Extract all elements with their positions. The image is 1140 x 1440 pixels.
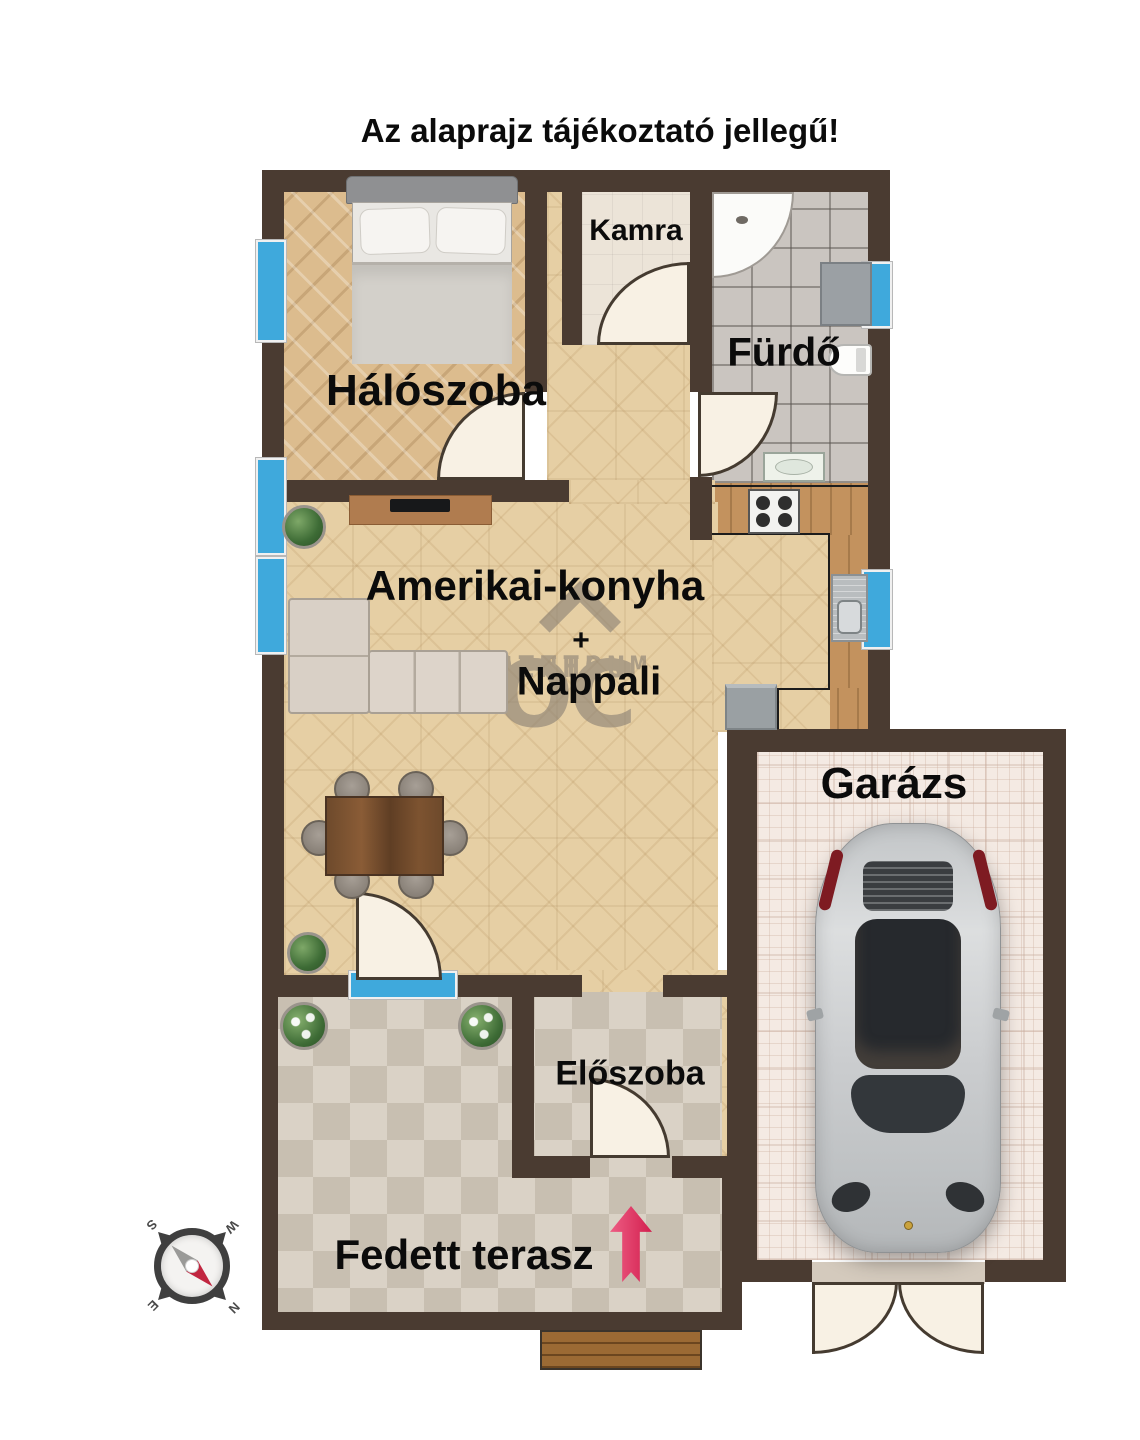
wooden-step [540, 1330, 702, 1370]
page-title: Az alaprajz tájékoztató jellegű! [361, 112, 840, 150]
wall-terrace-bottom [262, 1312, 722, 1330]
car-roof-glass [855, 919, 961, 1069]
engine-vent-icon [863, 861, 953, 911]
wall-garage-bottom-right [985, 1260, 1066, 1282]
living-kitchen-label: Amerikai-konyha [366, 562, 704, 610]
hall-label: Előszoba [555, 1055, 704, 1094]
bathroom-sink [763, 452, 825, 482]
toilet-tank [856, 348, 866, 372]
wall-garage-right [1043, 729, 1066, 1282]
car [815, 823, 1001, 1253]
potted-plant [287, 932, 329, 974]
kitchen-sink [831, 574, 868, 642]
compass-icon: N S E W [124, 1198, 260, 1334]
wall-hall-top-stub [663, 975, 737, 997]
potted-plant [280, 1002, 328, 1050]
bedroom-window [256, 240, 286, 342]
shower-drain-icon [736, 216, 748, 224]
burner-icon [756, 496, 770, 510]
sofa [368, 650, 508, 714]
gas-stove [748, 489, 800, 534]
garage-door-right-leaf [898, 1282, 984, 1354]
living-window-1 [256, 458, 286, 555]
living-label: Nappali [517, 660, 661, 705]
wall-living-bottom-left [262, 975, 352, 997]
pantry-label: Kamra [589, 214, 682, 248]
bathroom-label: Fürdő [727, 331, 840, 376]
pillow [435, 207, 507, 255]
floor-plan: Az alaprajz tájékoztató jellegű! [0, 0, 1140, 1440]
dining-table [325, 796, 444, 876]
burner-icon [778, 496, 792, 510]
refrigerator [725, 684, 777, 730]
sofa-corner [288, 598, 370, 714]
burner-icon [778, 513, 792, 527]
pillow [359, 207, 431, 255]
washing-machine [820, 262, 872, 326]
wall-hall-left [512, 975, 534, 1178]
compass-letter-north: N [226, 1299, 243, 1316]
garage-label: Garázs [821, 759, 968, 809]
wall-bathroom-left [690, 170, 712, 392]
potted-plant [282, 505, 326, 549]
terrace-label: Fedett terasz [334, 1231, 593, 1279]
wall-hall-bottom-left [512, 1156, 590, 1178]
car-windshield [851, 1075, 965, 1133]
basin-icon [775, 459, 813, 475]
wall-bathroom-left-stub [690, 477, 712, 540]
kitchen-partition-line [690, 485, 868, 487]
wall-terrace-right [722, 1178, 742, 1330]
bed-headboard [346, 176, 518, 204]
living-plus-label: + [572, 624, 590, 658]
living-window-2 [256, 557, 286, 654]
potted-plant [458, 1002, 506, 1050]
wall-bedroom-right [525, 170, 547, 392]
counter-edge [828, 533, 830, 690]
burner-icon [756, 513, 770, 527]
sink-basin [837, 600, 862, 634]
bedroom-label: Hálószoba [326, 366, 546, 416]
wall-terrace-left [262, 997, 278, 1330]
blanket [352, 262, 512, 364]
tv-icon [390, 499, 450, 512]
car-badge-icon [904, 1221, 913, 1230]
wall-pantry-left [562, 170, 582, 345]
counter-edge [777, 688, 779, 732]
garage-door-left-leaf [812, 1282, 898, 1354]
garage-threshold [812, 1262, 985, 1284]
wall-right [868, 170, 890, 752]
wall-garage-top [727, 729, 1066, 752]
counter-edge [777, 688, 830, 690]
